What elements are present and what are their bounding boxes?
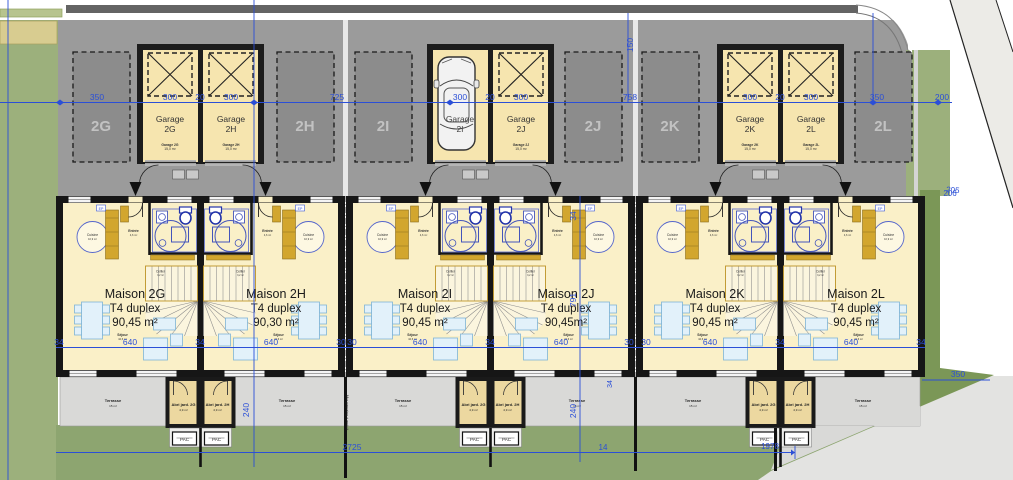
svg-text:Garage: Garage (446, 114, 475, 124)
svg-text:791: 791 (568, 293, 578, 307)
svg-text:Terrasse: Terrasse (105, 398, 122, 403)
svg-text:20: 20 (485, 92, 495, 102)
svg-text:2K: 2K (660, 118, 679, 135)
svg-text:640: 640 (703, 337, 717, 347)
svg-text:Garage: Garage (156, 114, 185, 124)
svg-text:300: 300 (804, 92, 818, 102)
svg-text:640: 640 (844, 337, 858, 347)
svg-text:Abri jard. 2G: Abri jard. 2G (171, 402, 195, 407)
svg-text:Terrasse: Terrasse (395, 398, 412, 403)
svg-text:2J: 2J (517, 124, 526, 134)
svg-text:90,45 m²: 90,45 m² (833, 317, 879, 329)
svg-text:15,0 m²: 15,0 m² (515, 147, 527, 151)
svg-text:15,0 m²: 15,0 m² (164, 147, 176, 151)
svg-text:30: 30 (347, 337, 357, 347)
svg-text:T4 duplex: T4 duplex (831, 303, 882, 315)
svg-text:Garage: Garage (217, 114, 246, 124)
svg-text:640: 640 (413, 337, 427, 347)
svg-text:758: 758 (623, 92, 637, 102)
svg-text:15 m²: 15 m² (859, 404, 867, 408)
svg-text:34: 34 (195, 337, 205, 347)
svg-text:34: 34 (485, 337, 495, 347)
svg-text:15,0 m²: 15,0 m² (225, 147, 237, 151)
svg-text:Garage: Garage (797, 114, 826, 124)
svg-text:Abri jard. 2H: Abri jard. 2H (206, 402, 230, 407)
svg-text:Terrasse: Terrasse (685, 398, 702, 403)
svg-text:200: 200 (935, 92, 949, 102)
svg-text:Garage: Garage (507, 114, 536, 124)
svg-text:T4 duplex: T4 duplex (400, 303, 451, 315)
svg-text:Mur parpaing + enduit: Mur parpaing + enduit (345, 395, 349, 430)
svg-text:725: 725 (330, 92, 344, 102)
svg-text:240: 240 (568, 404, 578, 418)
svg-text:2H: 2H (226, 124, 237, 134)
svg-text:2L: 2L (874, 118, 892, 135)
svg-text:15 m²: 15 m² (283, 404, 291, 408)
svg-text:640: 640 (264, 337, 278, 347)
svg-text:T4 duplex: T4 duplex (690, 303, 741, 315)
svg-text:90,45 m²: 90,45 m² (692, 317, 738, 329)
svg-text:34: 34 (54, 337, 64, 347)
svg-text:Maison 2J: Maison 2J (538, 287, 595, 301)
svg-text:Garage: Garage (736, 114, 765, 124)
svg-text:15,0 m²: 15,0 m² (744, 147, 756, 151)
svg-text:350: 350 (951, 369, 965, 379)
svg-text:Terrasse: Terrasse (279, 398, 296, 403)
svg-text:300: 300 (224, 92, 238, 102)
svg-text:Terrasse: Terrasse (855, 398, 872, 403)
svg-text:240: 240 (241, 403, 251, 417)
svg-text:205: 205 (946, 185, 961, 195)
svg-text:30: 30 (641, 337, 651, 347)
svg-text:T4 duplex: T4 duplex (110, 303, 161, 315)
svg-text:Maison 2G: Maison 2G (105, 287, 165, 301)
svg-text:2H: 2H (295, 118, 314, 135)
svg-text:2L: 2L (806, 124, 816, 134)
svg-text:34: 34 (607, 380, 614, 388)
svg-text:20: 20 (775, 92, 785, 102)
svg-text:350: 350 (870, 92, 884, 102)
svg-text:34: 34 (916, 337, 926, 347)
svg-text:90,45 m²: 90,45 m² (112, 317, 158, 329)
svg-text:350: 350 (90, 92, 104, 102)
svg-text:4,9 m²: 4,9 m² (213, 408, 222, 412)
svg-text:2G: 2G (164, 124, 175, 134)
svg-text:300: 300 (453, 92, 467, 102)
svg-text:90,45 m²: 90,45 m² (402, 317, 448, 329)
svg-text:34: 34 (775, 337, 785, 347)
svg-text:15 m²: 15 m² (399, 404, 407, 408)
svg-text:640: 640 (123, 337, 137, 347)
svg-text:30: 30 (624, 337, 634, 347)
svg-text:15 m²: 15 m² (689, 404, 697, 408)
svg-text:4,9 m²: 4,9 m² (179, 408, 188, 412)
svg-text:2725: 2725 (343, 442, 362, 452)
svg-text:90,45m²: 90,45m² (545, 317, 587, 329)
svg-text:640: 640 (554, 337, 568, 347)
svg-text:T4 duplex: T4 duplex (541, 303, 592, 315)
svg-text:150: 150 (625, 38, 635, 52)
svg-text:34: 34 (568, 211, 578, 221)
svg-text:14: 14 (599, 443, 608, 452)
svg-text:30: 30 (336, 337, 346, 347)
svg-text:Maison 2K: Maison 2K (685, 287, 745, 301)
svg-text:15,0 m²: 15,0 m² (805, 147, 817, 151)
svg-text:2I: 2I (456, 124, 463, 134)
svg-text:300: 300 (514, 92, 528, 102)
svg-text:T4 duplex: T4 duplex (251, 303, 302, 315)
svg-text:90,30 m²: 90,30 m² (253, 317, 299, 329)
svg-text:300: 300 (743, 92, 757, 102)
svg-text:2I: 2I (377, 118, 390, 135)
svg-text:300: 300 (163, 92, 177, 102)
svg-text:2G: 2G (91, 118, 111, 135)
svg-text:1978: 1978 (761, 442, 779, 451)
svg-text:Maison 2I: Maison 2I (398, 287, 452, 301)
svg-text:2J: 2J (585, 118, 602, 135)
svg-text:20: 20 (195, 92, 205, 102)
svg-text:15 m²: 15 m² (109, 404, 117, 408)
svg-text:Maison 2L: Maison 2L (827, 287, 885, 301)
svg-text:2K: 2K (745, 124, 756, 134)
svg-text:Terrasse: Terrasse (569, 398, 586, 403)
svg-text:Maison 2H: Maison 2H (246, 287, 306, 301)
